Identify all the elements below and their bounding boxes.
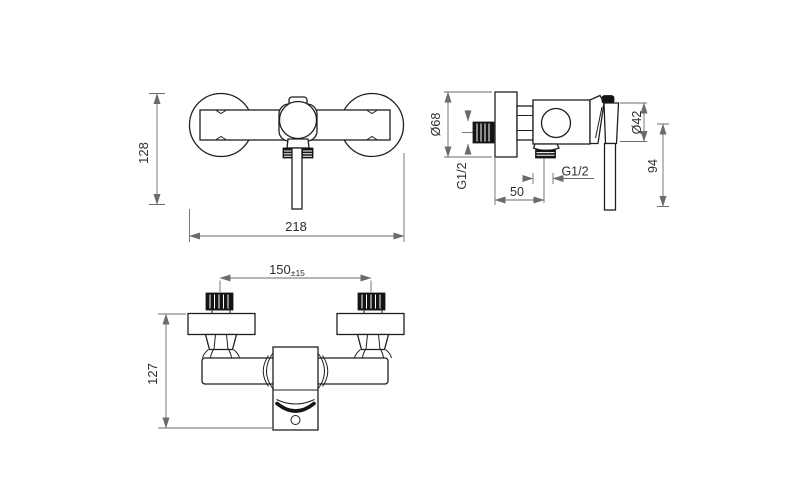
valve-circle-side [542, 109, 571, 138]
dim-handle-length: 94 [646, 159, 660, 173]
wall-plate-top-left [188, 314, 255, 335]
valve-block-top [273, 347, 318, 430]
dim-outlet-thread: G1/2 [561, 165, 588, 179]
diverter-knob [602, 96, 614, 104]
handle-grip-side [604, 103, 619, 144]
dim-front-width: 218 [285, 219, 307, 234]
dim-top-depth: 127 [145, 363, 160, 385]
technical-drawing-canvas: 128 218 Ø68 G1/ [0, 0, 797, 504]
front-view [190, 94, 404, 210]
inlet-nipple-side [473, 122, 494, 143]
outlet-thread-side [536, 150, 556, 158]
dim-front-height: 128 [136, 142, 151, 164]
inlet-nipple-top-left [206, 293, 233, 314]
top-view [188, 293, 404, 430]
dim-inlet-thread: G1/2 [455, 162, 469, 189]
top-view-dimensions: 150±15 127 [145, 262, 371, 428]
wall-plate-top-right [337, 314, 404, 335]
handle-bracket [590, 96, 604, 144]
dim-inlet-spacing: 150±15 [269, 262, 305, 278]
outlet-skirt [534, 144, 560, 151]
dim-wall-to-outlet: 50 [510, 185, 524, 199]
valve-body [280, 102, 317, 139]
valve-neck [287, 139, 309, 148]
lever-handle-side [605, 144, 616, 211]
lever-handle-front [292, 148, 302, 209]
hex-adapter [517, 106, 533, 140]
hex-nut-right [355, 335, 392, 359]
side-view [462, 92, 619, 210]
drawing-page: 128 218 Ø68 G1/ [0, 0, 797, 504]
wall-plate-side [495, 92, 517, 157]
dim-handle-diameter: Ø42 [630, 111, 644, 135]
inlet-nipple-top-right [358, 293, 385, 314]
hex-nut-left [203, 335, 240, 359]
dim-plate-diameter: Ø68 [429, 113, 443, 137]
